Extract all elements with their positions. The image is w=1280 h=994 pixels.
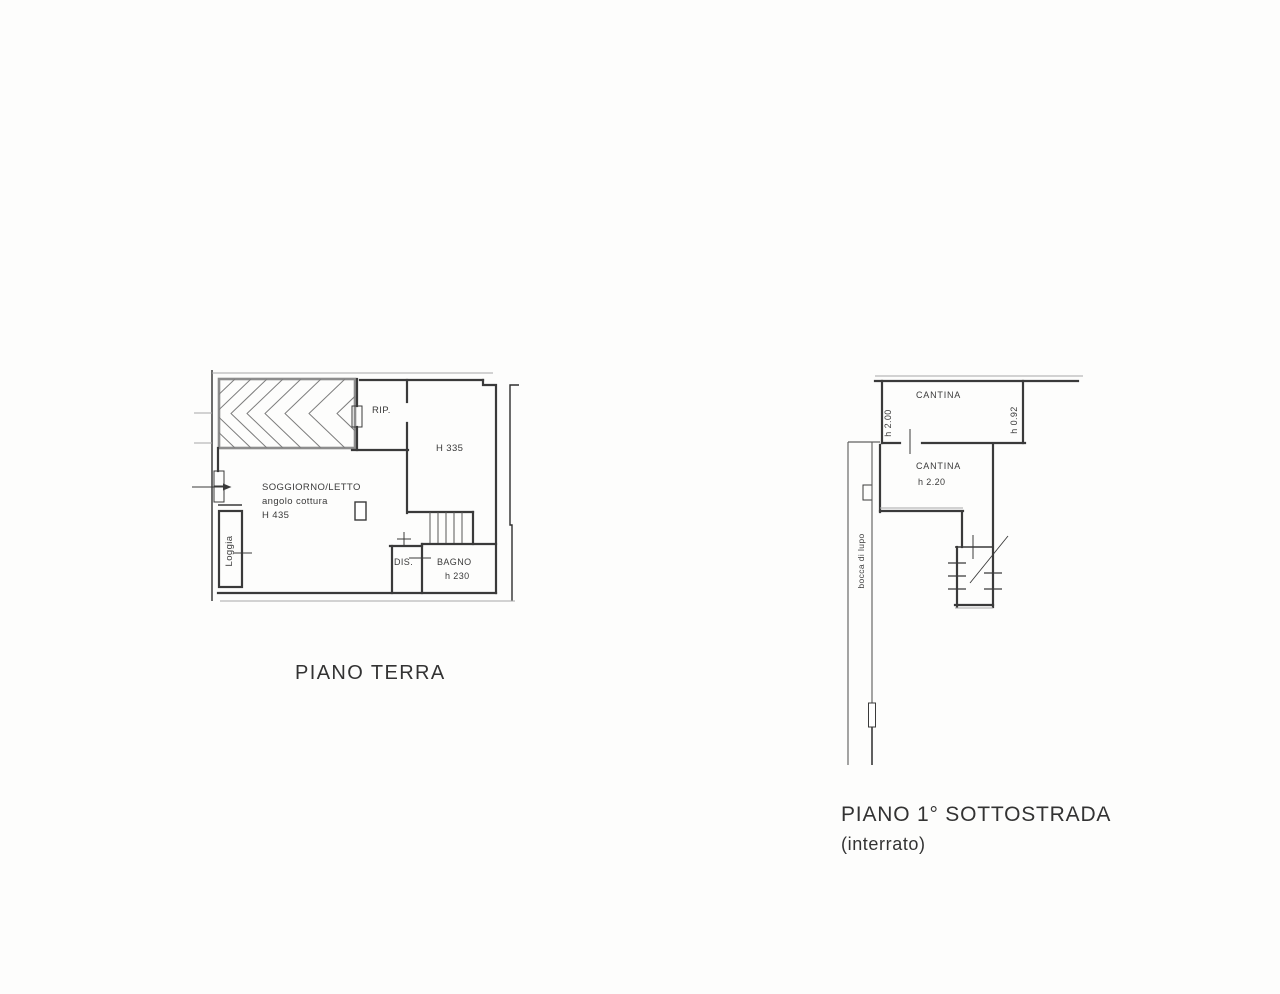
label-bocca-di-lupo: bocca di lupo <box>855 526 867 596</box>
height-label-h230: h 230 <box>445 570 470 582</box>
room-label-soggiorno: SOGGIORNO/LETTO <box>262 482 361 494</box>
stairs-ground <box>430 512 462 543</box>
room-label-bagno: BAGNO <box>437 556 472 568</box>
height-label-h335: H 335 <box>436 443 463 455</box>
room-label-cantina-top: CANTINA <box>916 389 961 401</box>
basement-floor-plan <box>840 368 1095 773</box>
basement-title: PIANO 1° SOTTOSTRADA <box>841 803 1111 827</box>
room-label-cantina-lower: CANTINA <box>916 460 961 472</box>
ground-floor-title: PIANO TERRA <box>295 662 446 685</box>
column-symbol <box>355 502 366 520</box>
room-label-loggia: Loggia <box>224 526 236 576</box>
height-label-h092: h 0.92 <box>1008 400 1020 440</box>
height-label-h435: H 435 <box>262 510 289 522</box>
bocca-di-lupo-walls <box>848 442 876 765</box>
door-symbol <box>352 406 362 427</box>
room-label-dis: DIS. <box>394 556 413 568</box>
height-label-h200: h 2.00 <box>882 403 894 443</box>
basement-subtitle: (interrato) <box>841 834 926 855</box>
floorplan-document: RIP. H 335 SOGGIORNO/LETTO angolo cottur… <box>0 0 1280 994</box>
window-symbol <box>869 703 876 727</box>
window-symbol <box>863 485 872 500</box>
room-label-angolo-cottura: angolo cottura <box>262 496 328 508</box>
height-label-h220: h 2.20 <box>918 476 945 488</box>
room-label-rip: RIP. <box>372 405 391 417</box>
